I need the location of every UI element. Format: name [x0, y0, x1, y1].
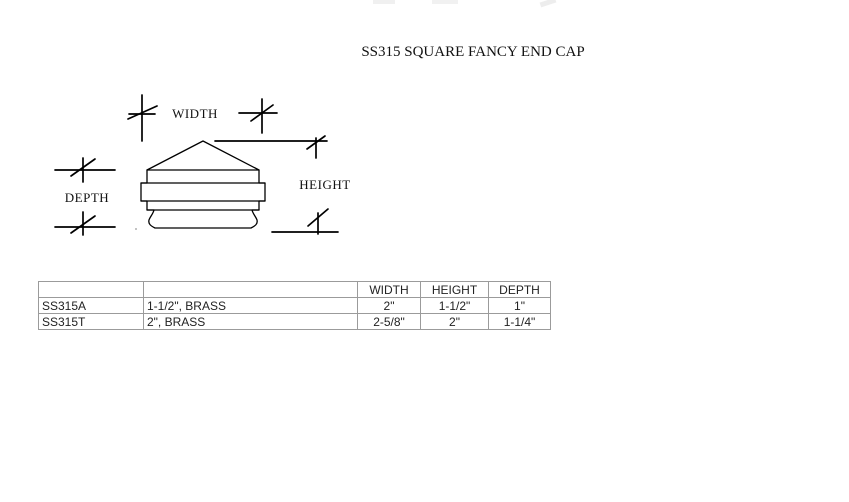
depth-dimension-label: DEPTH [55, 190, 119, 206]
header-empty-cell [144, 282, 358, 298]
table-row: SS315A 1-1/2", BRASS 2" 1-1/2" 1" [39, 298, 551, 314]
dimension-diagram [0, 0, 849, 502]
description-cell: 1-1/2", BRASS [144, 298, 358, 314]
spec-sheet-page: SS315 SQUARE FANCY END CAP [0, 0, 849, 502]
spec-table-header-row: WIDTH HEIGHT DEPTH [39, 282, 551, 298]
header-empty-cell [39, 282, 144, 298]
description-cell: 2", BRASS [144, 314, 358, 330]
width-dimension-label: WIDTH [165, 106, 225, 122]
width-value-cell: 2-5/8" [358, 314, 421, 330]
height-dimension-bottom-leader [272, 209, 338, 234]
header-width-cell: WIDTH [358, 282, 421, 298]
product-code-cell: SS315A [39, 298, 144, 314]
product-code-cell: SS315T [39, 314, 144, 330]
header-depth-cell: DEPTH [489, 282, 551, 298]
height-dimension-top-leader [215, 136, 327, 158]
depth-value-cell: 1-1/4" [489, 314, 551, 330]
depth-dimension-top-leader [55, 158, 115, 182]
height-dimension-label: HEIGHT [291, 177, 359, 193]
end-cap-outline [141, 141, 265, 228]
height-value-cell: 1-1/2" [421, 298, 489, 314]
table-row: SS315T 2", BRASS 2-5/8" 2" 1-1/4" [39, 314, 551, 330]
width-dimension-left-tick [128, 95, 157, 141]
header-height-cell: HEIGHT [421, 282, 489, 298]
width-dimension-right-tick [239, 99, 277, 133]
depth-dimension-bottom-leader [55, 212, 115, 235]
depth-value-cell: 1" [489, 298, 551, 314]
spec-table: WIDTH HEIGHT DEPTH SS315A 1-1/2", BRASS … [38, 281, 551, 330]
width-value-cell: 2" [358, 298, 421, 314]
height-value-cell: 2" [421, 314, 489, 330]
